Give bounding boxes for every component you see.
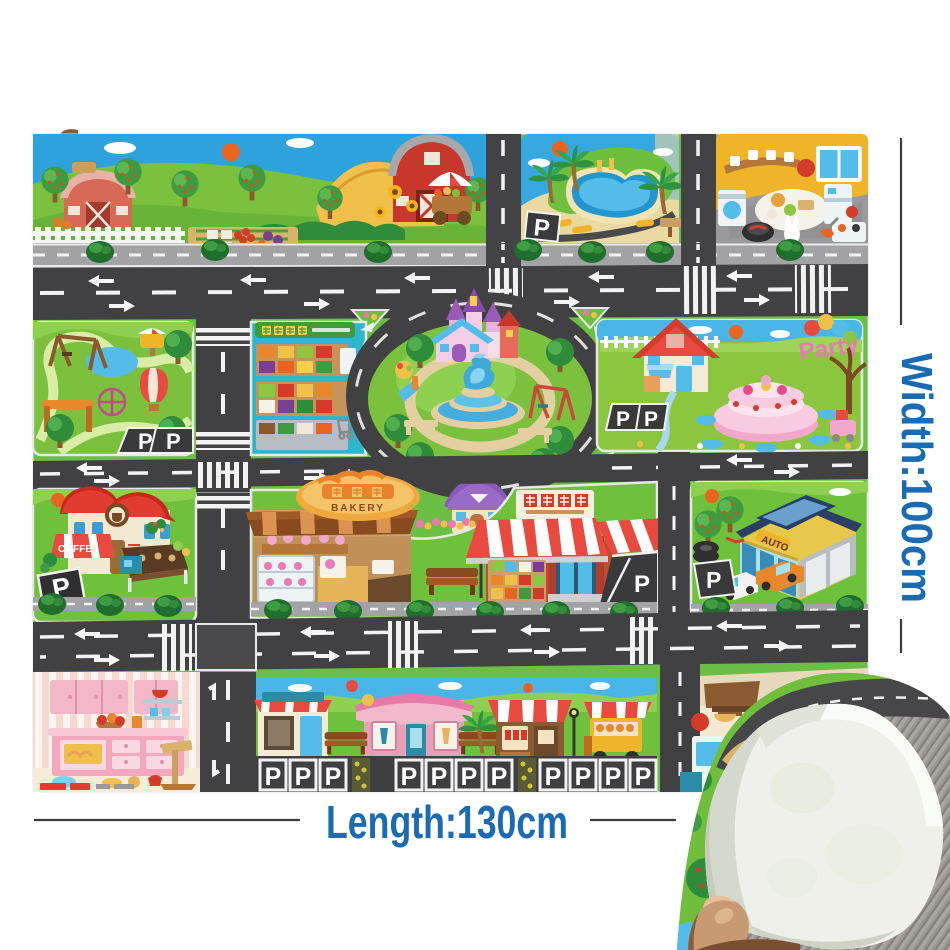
svg-text:P: P (635, 763, 652, 791)
svg-text:COFFEE: COFFEE (58, 544, 99, 555)
svg-text:P: P (325, 763, 342, 791)
svg-text:P: P (575, 763, 592, 791)
svg-text:P: P (532, 214, 551, 243)
svg-text:P: P (166, 429, 181, 454)
svg-text:P: P (461, 763, 478, 791)
svg-text:P: P (634, 571, 650, 598)
svg-text:Width:100cm: Width:100cm (892, 353, 941, 603)
svg-text:P: P (491, 763, 508, 791)
svg-text:P: P (295, 763, 312, 791)
svg-text:P: P (706, 567, 721, 593)
svg-text:P: P (644, 408, 658, 431)
svg-text:P: P (605, 763, 622, 791)
svg-text:P: P (401, 763, 418, 791)
svg-text:P: P (138, 429, 153, 454)
svg-text:BAKERY: BAKERY (331, 503, 385, 514)
svg-text:P: P (265, 763, 282, 791)
svg-text:Length:130cm: Length:130cm (326, 796, 568, 848)
svg-text:P: P (545, 763, 562, 791)
svg-text:P: P (616, 408, 630, 431)
svg-text:P: P (431, 763, 448, 791)
